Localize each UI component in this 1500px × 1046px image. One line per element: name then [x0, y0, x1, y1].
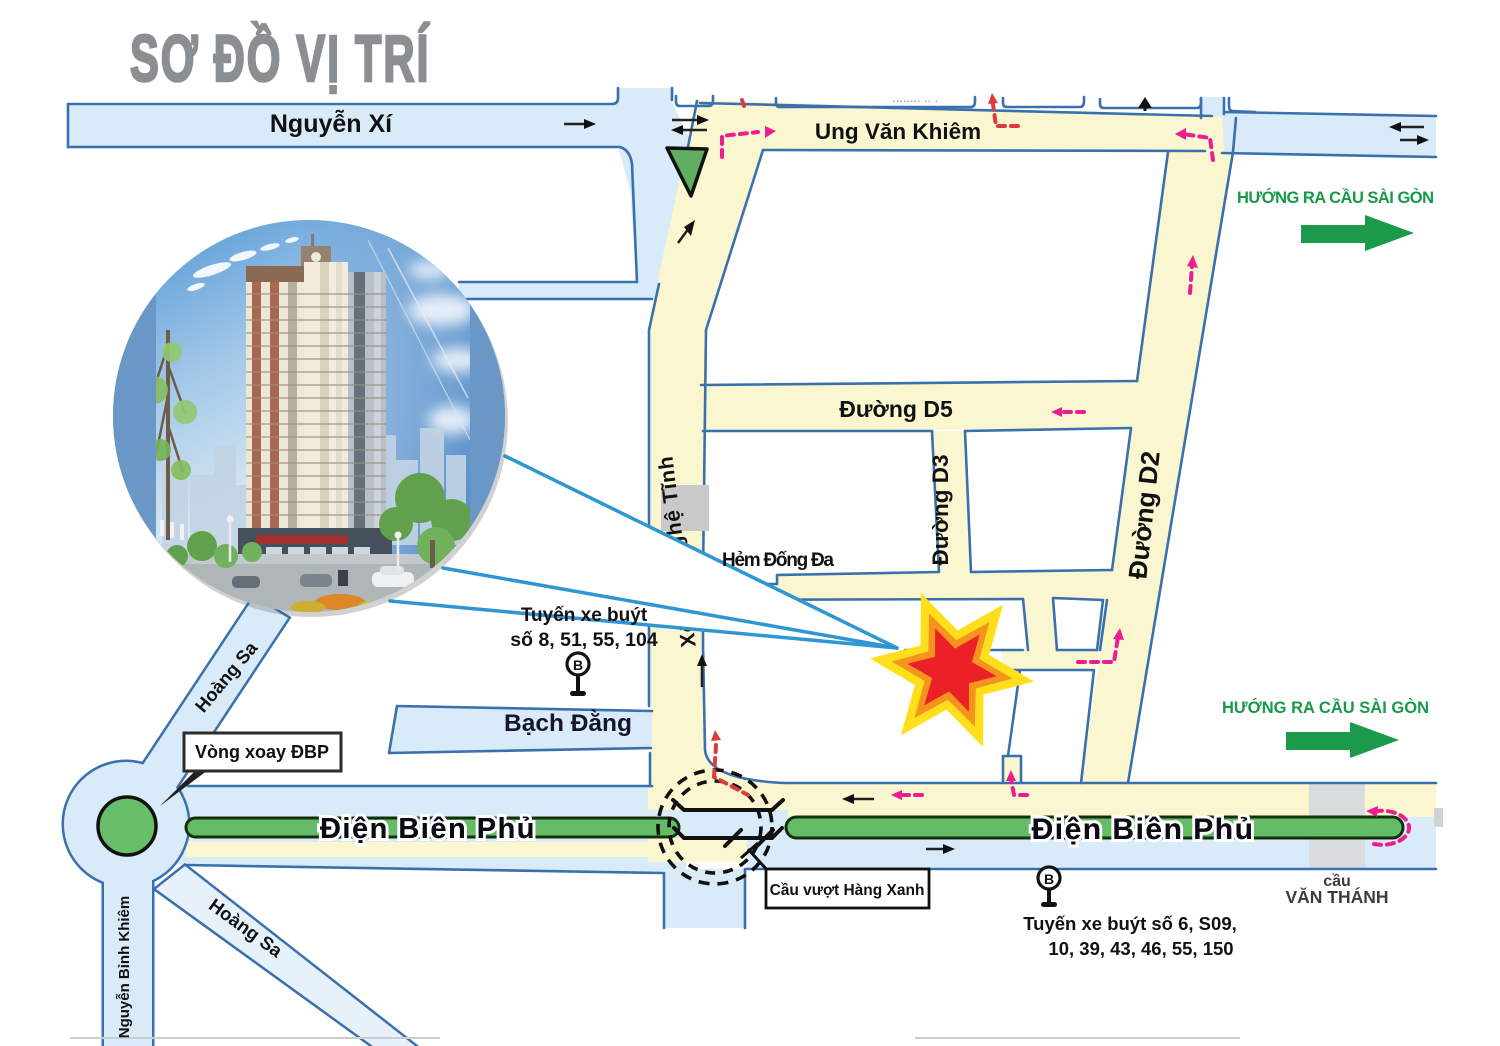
svg-text:Nguyễn Bỉnh Khiêm: Nguyễn Bỉnh Khiêm — [116, 896, 133, 1039]
svg-text:B: B — [573, 657, 583, 673]
svg-text:số 8, 51, 55, 104: số 8, 51, 55, 104 — [510, 629, 658, 651]
svg-text:SƠ ĐỒ VỊ TRÍ: SƠ ĐỒ VỊ TRÍ — [130, 22, 431, 95]
svg-text:Nguyễn Xí: Nguyễn Xí — [270, 108, 393, 138]
svg-text:........ .. .: ........ .. . — [893, 94, 939, 104]
svg-text:Tuyến xe buýt số 6, S09,: Tuyến xe buýt số 6, S09, — [1023, 913, 1237, 934]
svg-text:Đường D5: Đường D5 — [839, 396, 953, 422]
svg-text:Bạch Đằng: Bạch Đằng — [504, 709, 632, 737]
svg-text:Hẻm Đống Đa: Hẻm Đống Đa — [722, 550, 834, 571]
svg-text:Ung Văn Khiêm: Ung Văn Khiêm — [815, 119, 981, 144]
svg-text:10, 39, 43, 46, 55, 150: 10, 39, 43, 46, 55, 150 — [1048, 938, 1233, 959]
svg-text:Điện Biên Phủ: Điện Biên Phủ — [320, 813, 536, 845]
svg-text:Đường D3: Đường D3 — [928, 454, 953, 565]
svg-text:VĂN THÁNH: VĂN THÁNH — [1285, 886, 1388, 907]
svg-text:B: B — [1044, 871, 1054, 887]
svg-text:HƯỚNG RA CẦU SÀI GÒN: HƯỚNG RA CẦU SÀI GÒN — [1222, 698, 1429, 717]
svg-text:Tuyến xe buýt: Tuyến xe buýt — [521, 605, 648, 626]
svg-text:Điện Biên Phủ: Điện Biên Phủ — [1032, 813, 1255, 846]
svg-text:Cầu vượt Hàng Xanh: Cầu vượt Hàng Xanh — [770, 882, 925, 899]
svg-text:Vòng xoay ĐBP: Vòng xoay ĐBP — [195, 742, 329, 762]
svg-text:HƯỚNG RA CẦU SÀI GÒN: HƯỚNG RA CẦU SÀI GÒN — [1237, 188, 1434, 207]
